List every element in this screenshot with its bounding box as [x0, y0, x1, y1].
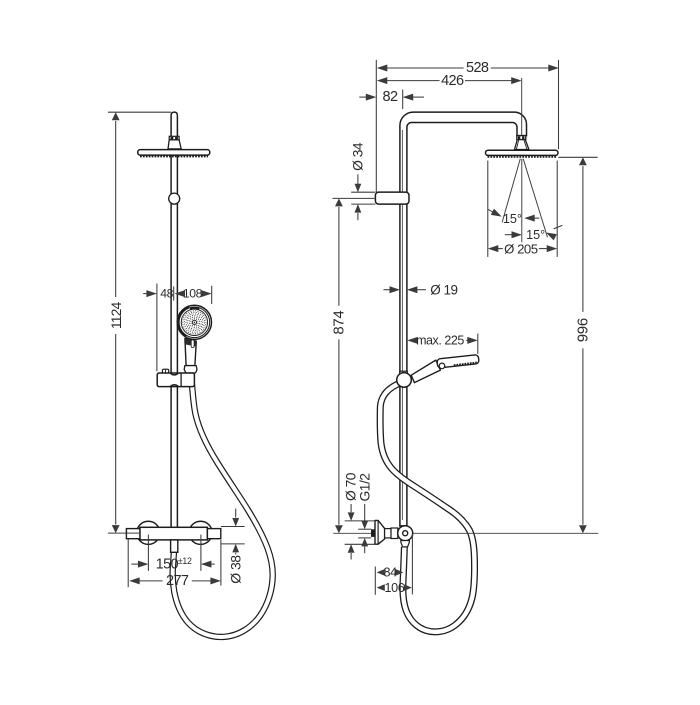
svg-text:Ø 19: Ø 19 [430, 282, 457, 297]
svg-text:84: 84 [383, 566, 397, 580]
svg-text:G1/2: G1/2 [357, 474, 372, 502]
svg-text:Ø 34: Ø 34 [350, 142, 365, 171]
svg-text:426: 426 [441, 73, 464, 89]
svg-text:874: 874 [330, 311, 347, 335]
svg-text:150: 150 [156, 556, 179, 572]
svg-text:48: 48 [160, 287, 173, 301]
svg-text:82: 82 [383, 89, 398, 105]
svg-text:277: 277 [166, 573, 189, 589]
svg-text:528: 528 [466, 60, 489, 76]
svg-text:15°: 15° [503, 212, 522, 226]
svg-text:±12: ±12 [178, 556, 192, 566]
svg-text:15°: 15° [526, 228, 545, 242]
svg-text:1124: 1124 [108, 301, 124, 329]
svg-text:max. 225: max. 225 [416, 334, 464, 348]
svg-text:Ø 70: Ø 70 [344, 472, 359, 501]
svg-text:996: 996 [574, 318, 591, 342]
svg-text:106: 106 [384, 581, 404, 595]
svg-text:Ø 38: Ø 38 [228, 555, 244, 584]
svg-text:108: 108 [183, 287, 203, 301]
svg-text:Ø 205: Ø 205 [504, 241, 538, 256]
